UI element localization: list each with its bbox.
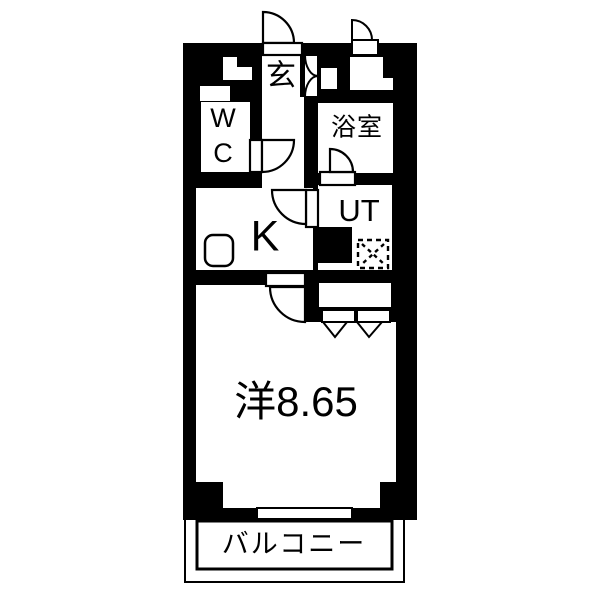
- wall-niche: [223, 57, 237, 80]
- entrance-label: 玄: [266, 60, 296, 93]
- utility-wall-block: [318, 227, 352, 263]
- shoe-cabinet: [320, 67, 338, 90]
- wall-niche: [200, 86, 230, 101]
- bath-door-leaf: [320, 172, 355, 185]
- kitchen-door-leaf: [306, 190, 318, 227]
- meter-box-niche: [372, 78, 393, 90]
- floorplan-canvas: 玄 WC 浴室 K UT 洋8.65 バルコニー: [0, 0, 600, 600]
- meter-box-door-leaf: [352, 40, 378, 55]
- window: [257, 508, 352, 519]
- western-room-door-leaf: [266, 273, 305, 286]
- closet-interior: [318, 282, 392, 308]
- western-room-floor-lower: [223, 482, 380, 508]
- closet-door-panel: [322, 310, 355, 322]
- entrance-divider-wall: [300, 55, 305, 97]
- meter-box-door: [352, 20, 378, 55]
- bath-label: 浴室: [331, 114, 383, 142]
- entrance-door-arc-icon: [263, 12, 294, 43]
- utility-label: UT: [338, 194, 379, 228]
- washing-machine-icon: [358, 240, 388, 268]
- entrance-door: [263, 12, 302, 55]
- kitchen-sink-icon: [205, 235, 233, 266]
- western-room-label: 洋8.65: [234, 379, 358, 425]
- entrance-door-leaf: [263, 43, 302, 55]
- wc-label: WC: [208, 101, 238, 171]
- wc-door-leaf: [250, 140, 262, 172]
- closet-door-panel: [357, 310, 390, 322]
- balcony-label: バルコニー: [222, 530, 366, 560]
- meter-box-door-arc-icon: [352, 20, 372, 40]
- wall-niche: [237, 67, 252, 80]
- floorplan-drawing: [0, 0, 600, 600]
- kitchen-label: K: [251, 213, 280, 260]
